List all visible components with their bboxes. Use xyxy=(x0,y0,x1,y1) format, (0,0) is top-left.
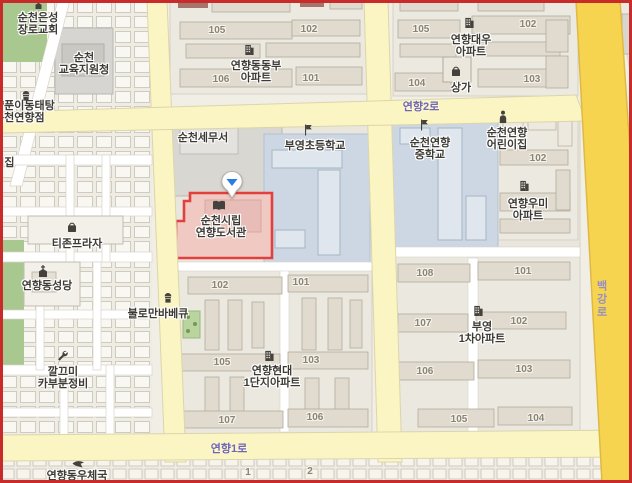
poi-label-tizon-plaza[interactable]: 티존프라자 xyxy=(52,238,103,250)
poi-label-middle-school[interactable]: 순천연향 중학교 xyxy=(410,137,450,161)
poi-label-education-office[interactable]: 순천 교육지원청 xyxy=(59,52,110,76)
poi-label-cathedral[interactable]: 연향동성당 xyxy=(22,280,73,292)
poi-label-post-office[interactable]: 연향동우체국 xyxy=(47,470,108,482)
building-number: 101 xyxy=(515,266,532,277)
building-number: 103 xyxy=(303,355,320,366)
road-label-yeonhyang2ro: 연향2로 xyxy=(403,101,439,113)
poi-label-tax-office[interactable]: 순천세무서 xyxy=(178,132,229,144)
building-number: 105 xyxy=(451,414,468,425)
poi-label-kkalkkeumi-repair[interactable]: 깔끄미 카부분정비 xyxy=(38,366,89,390)
building-number: 101 xyxy=(303,73,320,84)
poi-label-library[interactable]: 순천시립 연향도서관 xyxy=(196,215,247,239)
map-pin-marker[interactable] xyxy=(220,170,244,205)
poi-label-umi-apt[interactable]: 연향우미 아파트 xyxy=(508,198,548,222)
building-number: 102 xyxy=(212,280,229,291)
building-number: 107 xyxy=(219,415,236,426)
building-number: 107 xyxy=(415,318,432,329)
building-number: 105 xyxy=(413,24,430,35)
building-number: 105 xyxy=(209,25,226,36)
poi-label-daewoo-apt[interactable]: 연향대우 아파트 xyxy=(451,34,491,58)
building-number: 105 xyxy=(214,357,231,368)
poi-label-eunseong-church[interactable]: 순천은성 장로교회 xyxy=(18,12,58,36)
building-number: 104 xyxy=(409,78,426,89)
poi-label-daycare[interactable]: 순천연향 어린이집 xyxy=(487,127,527,151)
building-number: 108 xyxy=(417,268,434,279)
building-number: 102 xyxy=(511,316,528,327)
building-number: 103 xyxy=(524,74,541,85)
building-number: 106 xyxy=(307,412,324,423)
poi-label-hyundai-apt[interactable]: 연향현대 1단지아파트 xyxy=(244,365,301,389)
building-number: 2 xyxy=(307,466,313,477)
road-label-yeonhyang1ro: 연향1로 xyxy=(211,443,247,455)
building-number: 103 xyxy=(516,364,533,375)
poi-label-buyeong-elementary[interactable]: 부영초등학교 xyxy=(285,140,346,152)
building-number: 102 xyxy=(301,24,318,35)
poi-label-dongbu-apt[interactable]: 연향동동부 아파트 xyxy=(231,60,282,84)
poi-label-buyeong1-apt[interactable]: 부영 1차아파트 xyxy=(459,321,506,345)
map-viewport[interactable]: 순천은성 장로교회 순천 교육지원청 양푼이동태탕 순천연향점 어린이집 티존프… xyxy=(0,0,632,483)
building-number: 104 xyxy=(528,413,545,424)
building-number: 102 xyxy=(520,19,537,30)
building-number: 1 xyxy=(245,467,251,478)
poi-label-cutoff-daycare[interactable]: 어린이집 xyxy=(0,157,14,169)
building-number: 102 xyxy=(530,153,547,164)
building-number: 101 xyxy=(293,277,310,288)
poi-label-sangga[interactable]: 상가 xyxy=(451,82,471,94)
building-number: 106 xyxy=(417,366,434,377)
building-number: 106 xyxy=(213,74,230,85)
poi-label-bulloman-bbq[interactable]: 불로만바베큐 xyxy=(128,308,189,320)
road-label-baekgangro: 백강로 xyxy=(595,280,607,319)
poi-label-yangpun-restaurant[interactable]: 양푼이동태탕 순천연향점 xyxy=(0,100,55,124)
